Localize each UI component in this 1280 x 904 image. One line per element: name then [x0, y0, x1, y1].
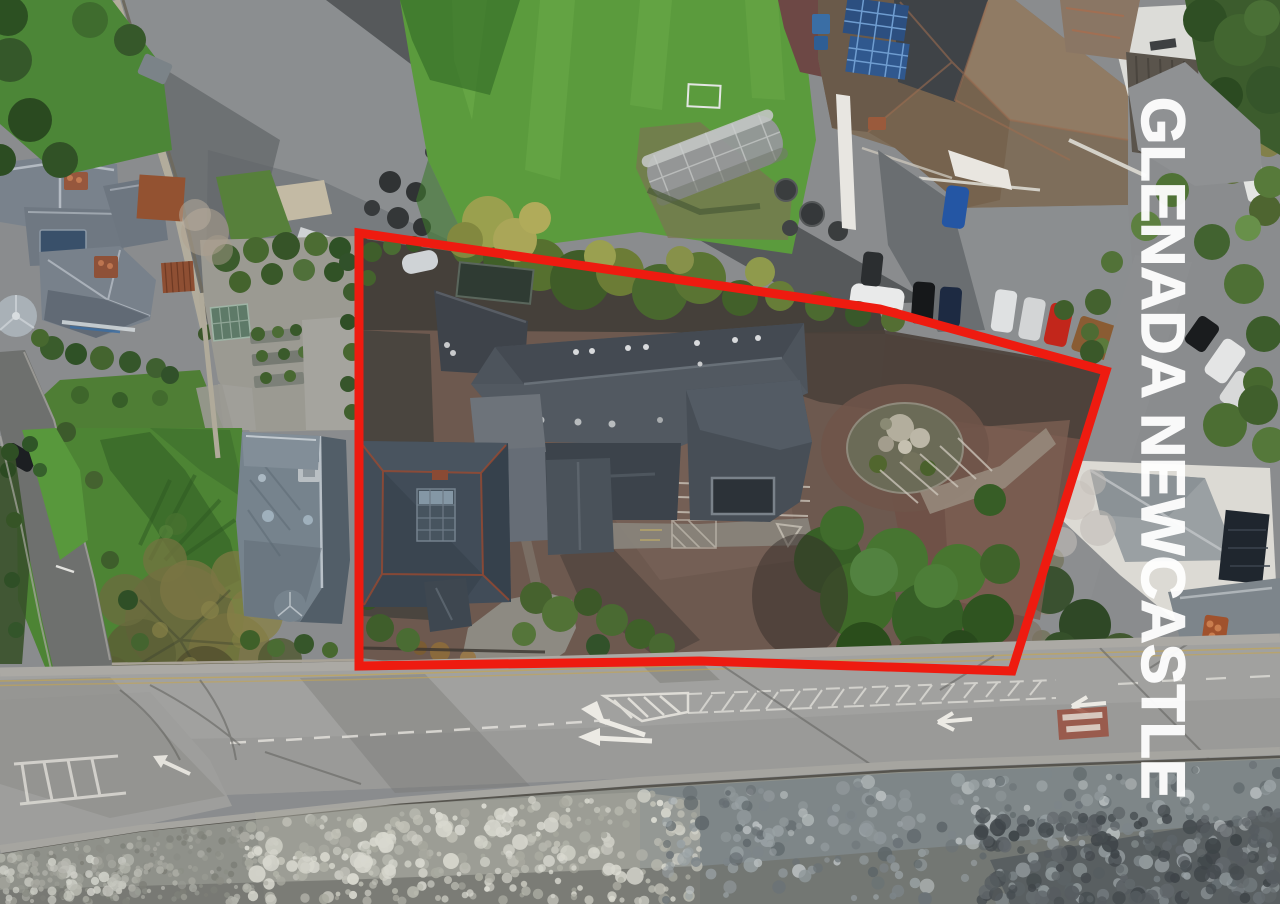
- svg-text:GLENADA NEWCASTLE: GLENADA NEWCASTLE: [1129, 97, 1197, 800]
